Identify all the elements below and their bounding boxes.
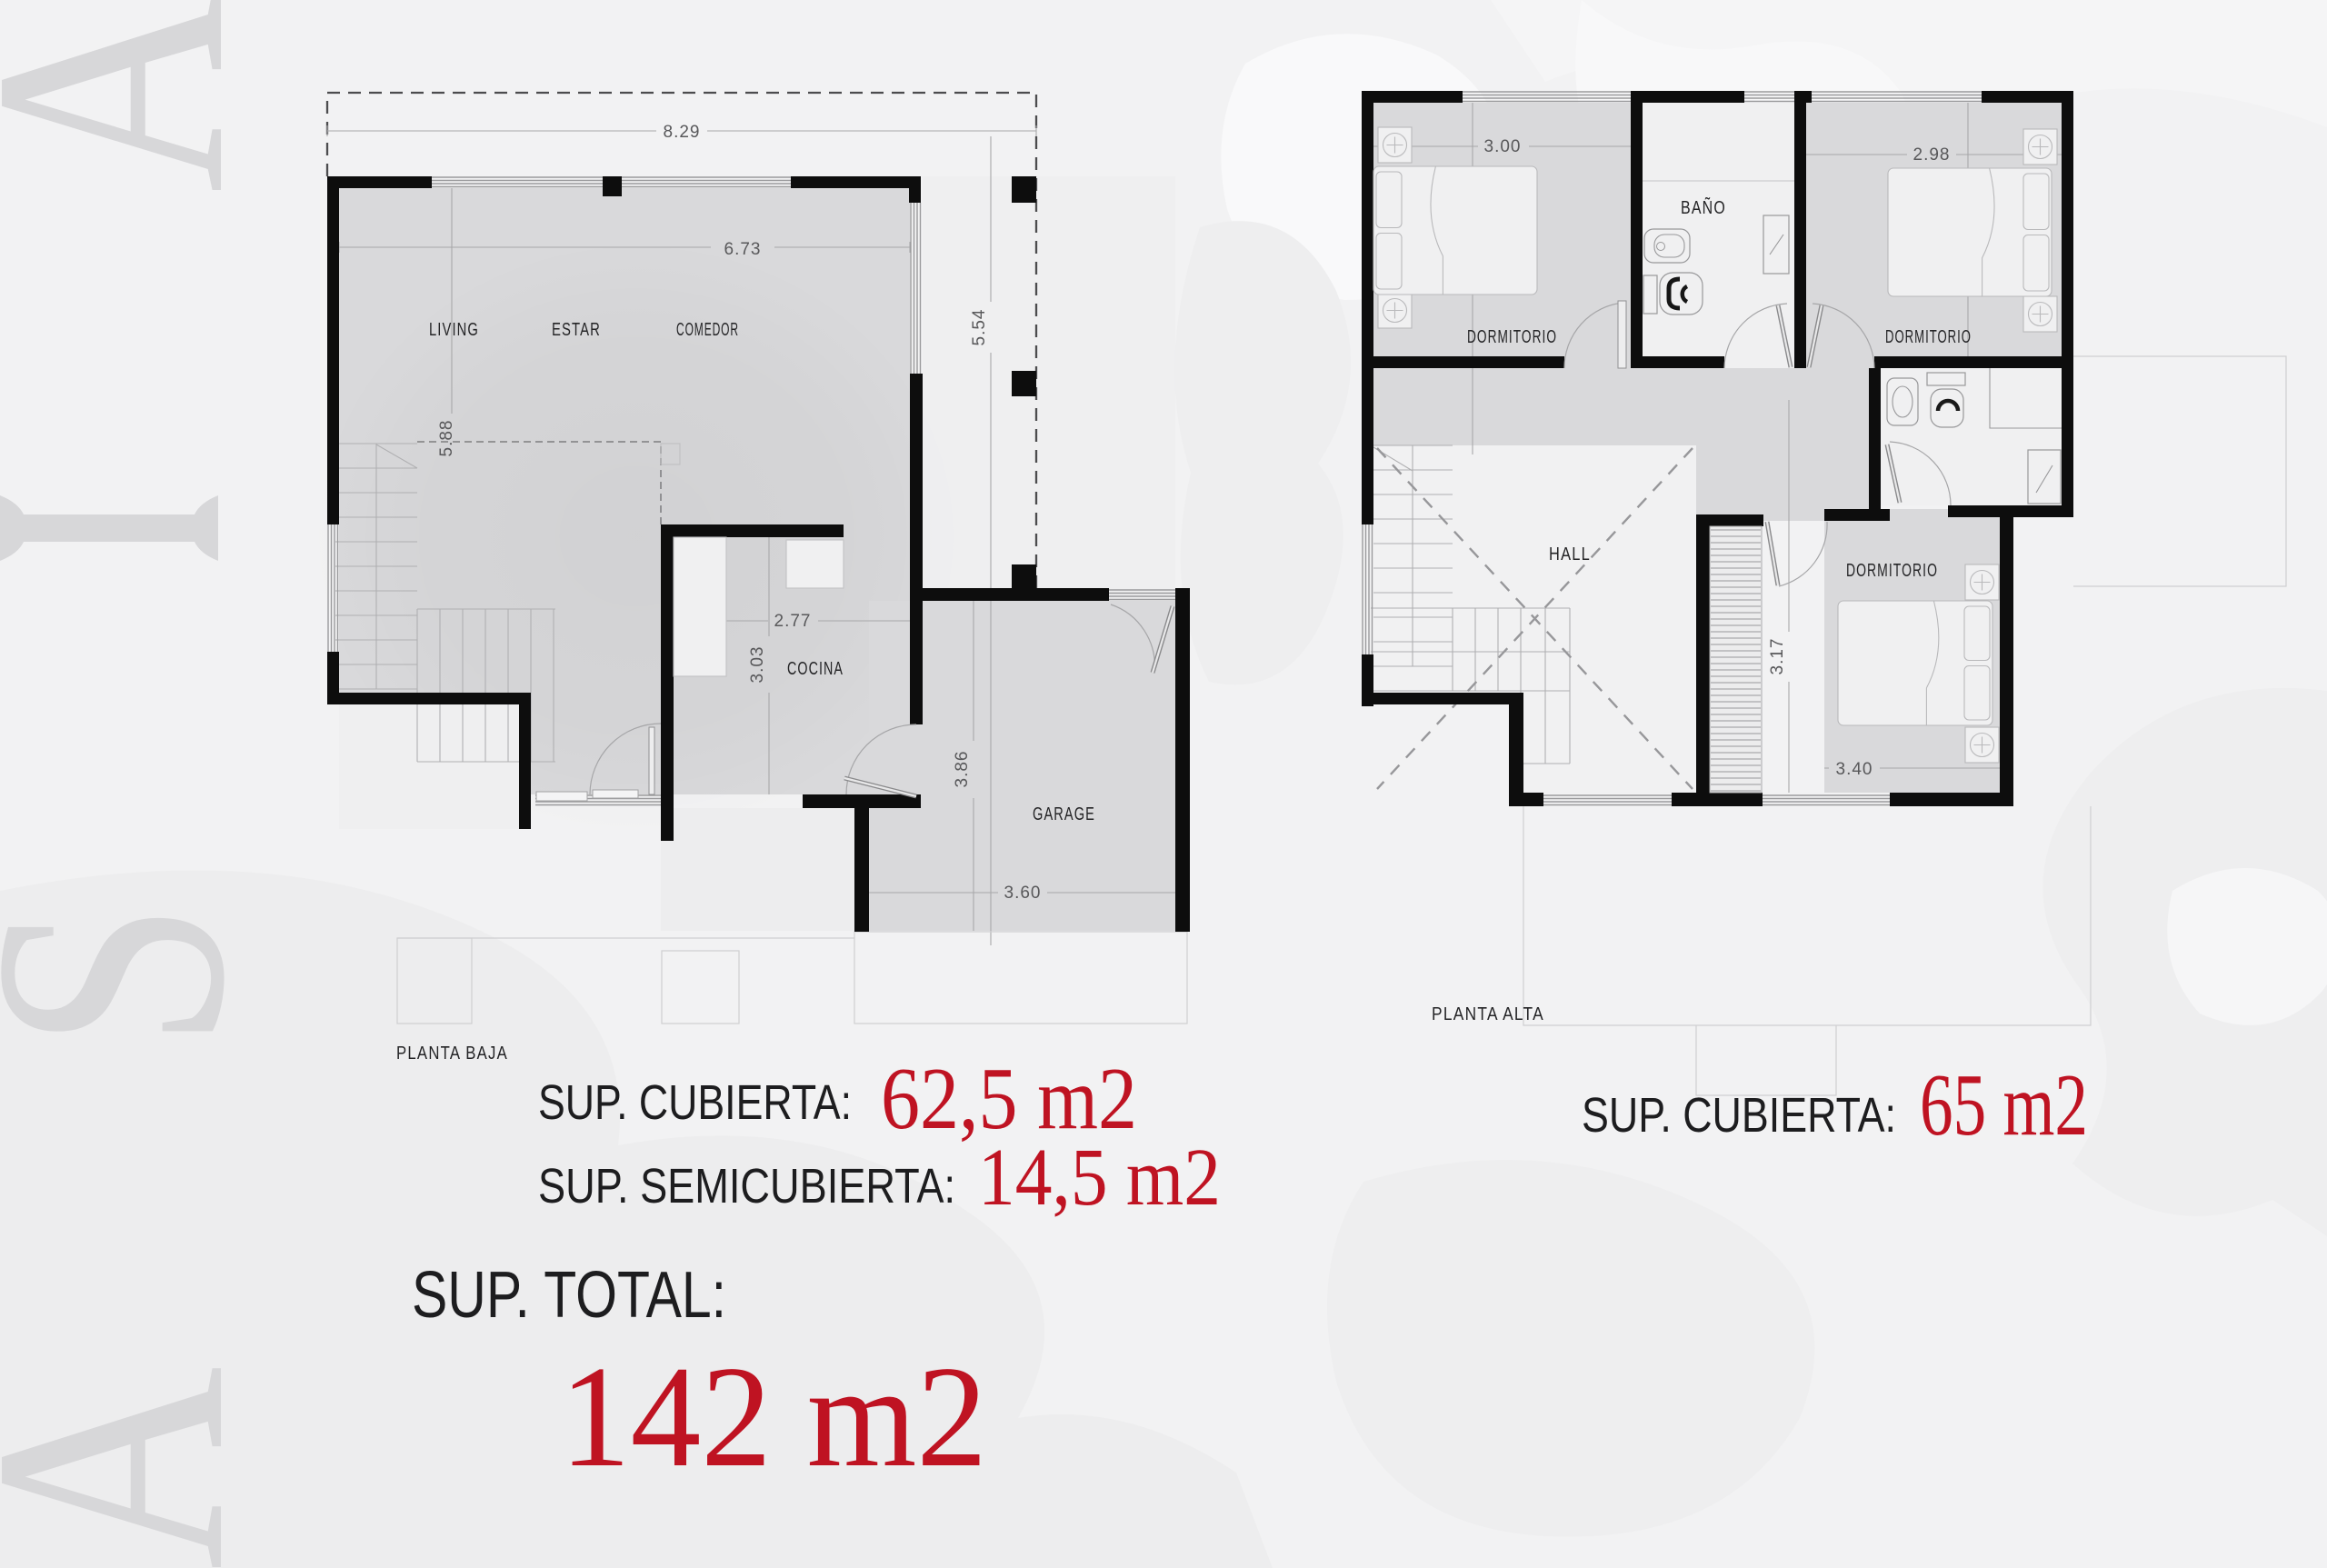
svg-text:3.03: 3.03 [748,646,767,684]
svg-text:PLANTA BAJA: PLANTA BAJA [396,1044,508,1064]
svg-text:COCINA: COCINA [787,659,844,679]
svg-text:8.29: 8.29 [664,123,701,142]
svg-text:COMEDOR: COMEDOR [676,320,739,340]
svg-text:SUP. SEMICUBIERTA:: SUP. SEMICUBIERTA: [538,1159,955,1213]
svg-text:A: A [0,1366,294,1568]
svg-text:2.77: 2.77 [774,612,812,631]
svg-text:65 m2: 65 m2 [1920,1056,2088,1154]
svg-text:5.54: 5.54 [970,309,989,346]
svg-text:3.17: 3.17 [1768,638,1787,675]
svg-text:3.40: 3.40 [1836,760,1873,779]
svg-text:LIVING: LIVING [429,320,479,340]
svg-text:ESTAR: ESTAR [552,320,601,340]
svg-text:5.88: 5.88 [437,420,456,457]
svg-text:GARAGE: GARAGE [1033,804,1095,824]
svg-text:DORMITORIO: DORMITORIO [1885,327,1972,347]
svg-text:HALL: HALL [1549,544,1591,564]
svg-text:3.60: 3.60 [1004,884,1042,903]
svg-text:SUP. CUBIERTA:: SUP. CUBIERTA: [538,1075,852,1130]
svg-text:14,5 m2: 14,5 m2 [978,1133,1221,1223]
svg-text:DORMITORIO: DORMITORIO [1467,327,1557,347]
svg-text:2.98: 2.98 [1913,145,1951,165]
svg-text:6.73: 6.73 [724,240,762,259]
svg-text:A: A [0,0,294,193]
svg-text:PLANTA ALTA: PLANTA ALTA [1432,1004,1544,1024]
svg-text:3.00: 3.00 [1484,137,1522,156]
svg-text:142 m2: 142 m2 [560,1335,987,1497]
svg-text:SUP. CUBIERTA:: SUP. CUBIERTA: [1582,1088,1896,1143]
svg-text:BAÑO: BAÑO [1681,196,1726,218]
svg-text:SUP. TOTAL:: SUP. TOTAL: [412,1259,726,1332]
svg-text:DORMITORIO: DORMITORIO [1846,561,1938,581]
svg-text:3.86: 3.86 [953,751,972,788]
svg-text:S: S [0,902,294,1049]
